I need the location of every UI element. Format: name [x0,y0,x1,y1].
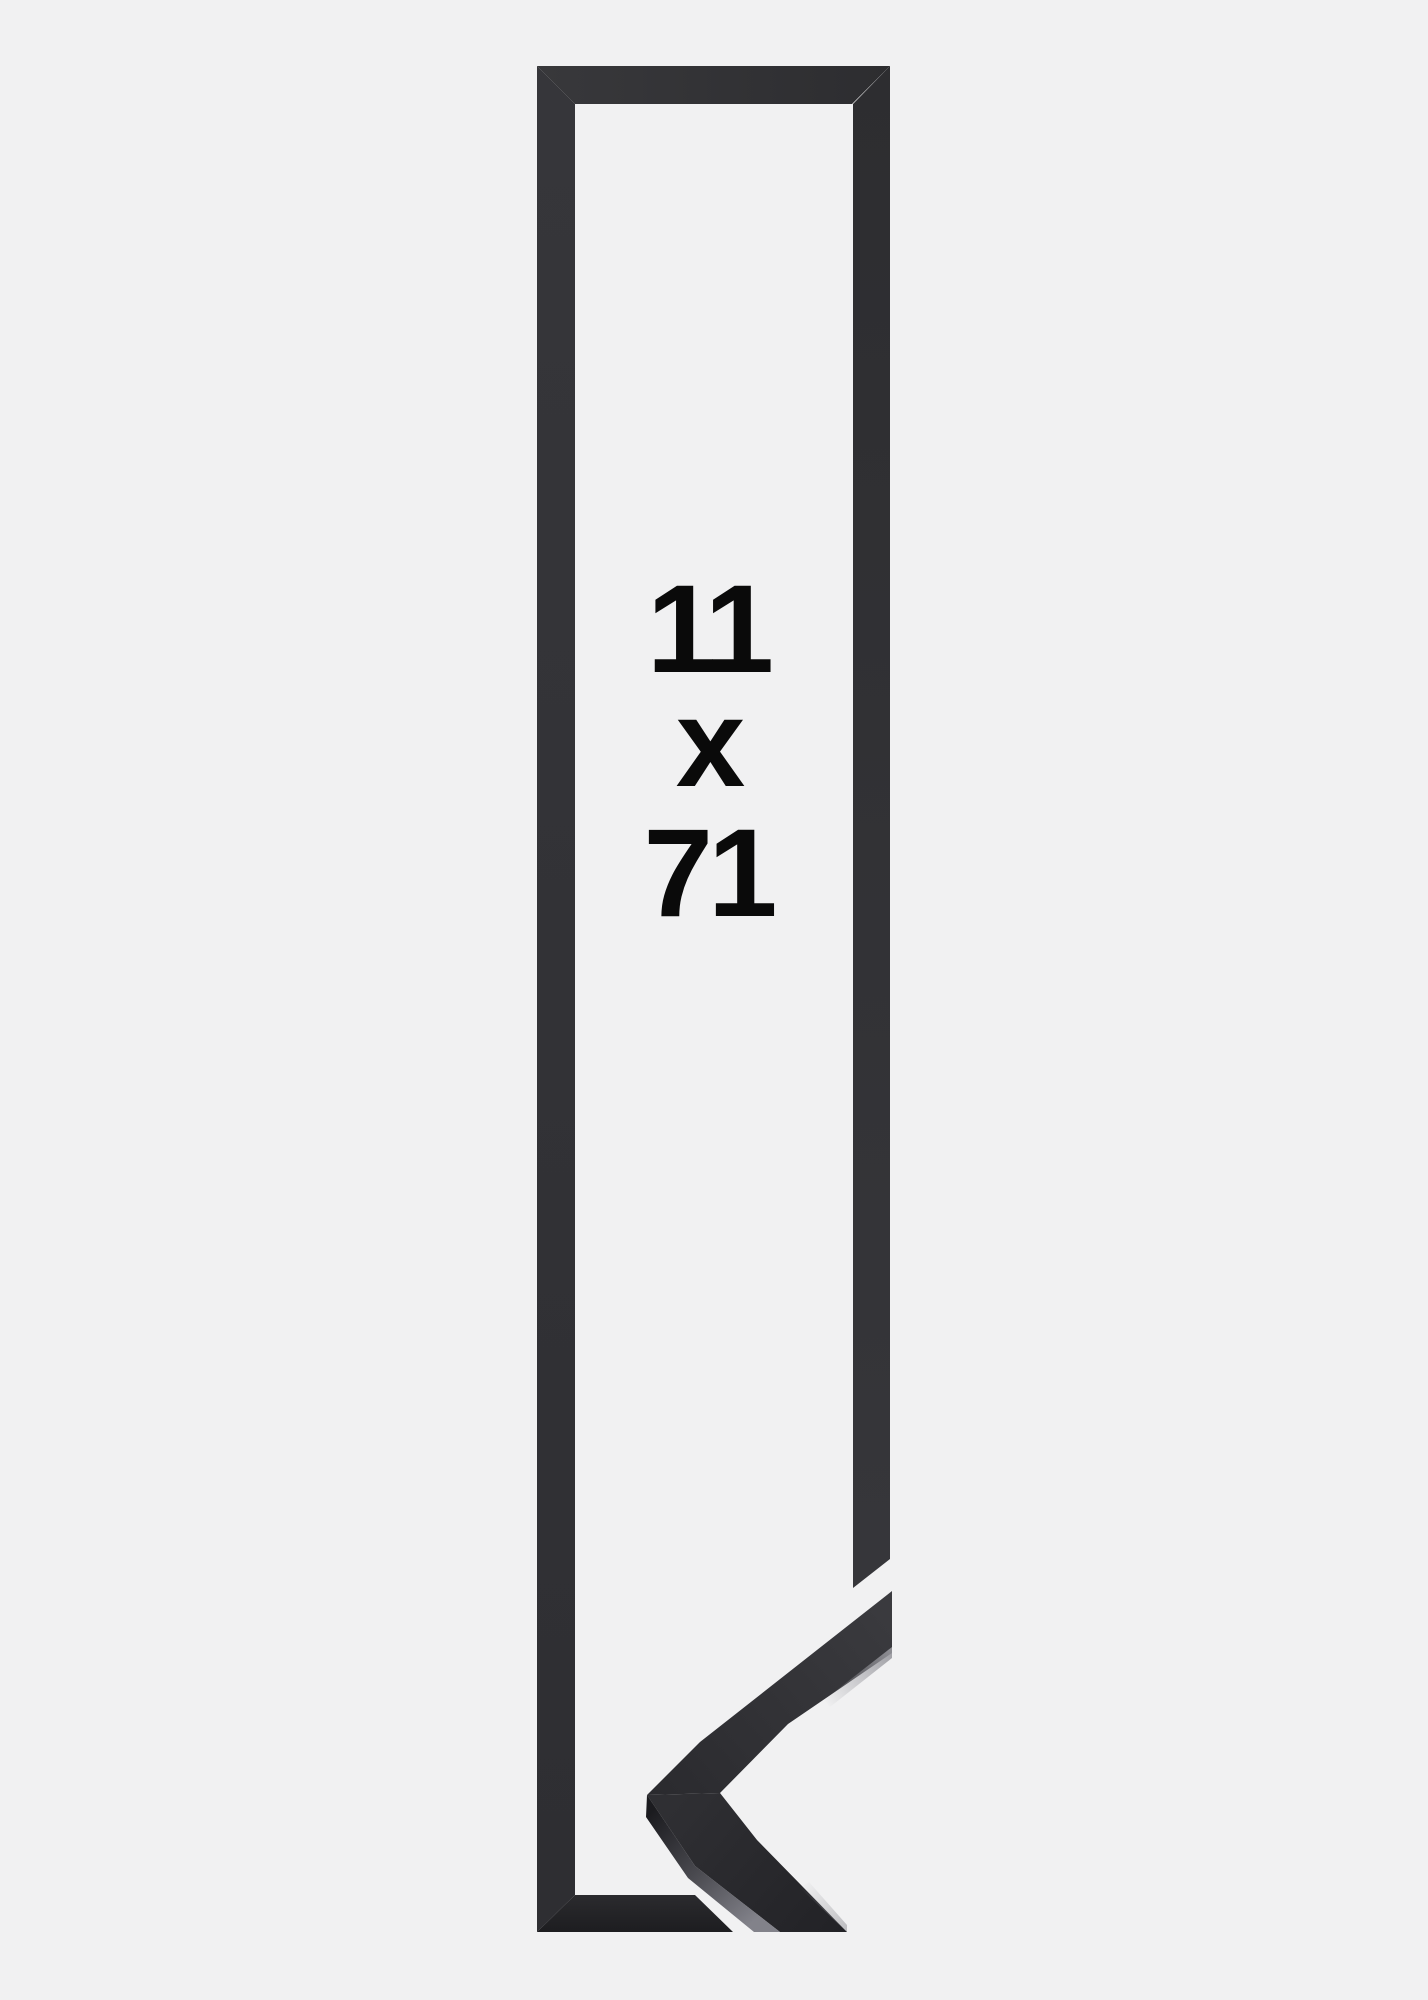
size-separator: x [676,681,741,806]
size-height-value: 71 [643,811,772,936]
corner-detail-upper-arm [647,1591,892,1795]
frame-left-bar [537,66,575,1932]
frame-right-bar [853,66,890,1588]
product-image-canvas: 11 x 71 [0,0,1428,2000]
frame-top-bar [537,66,890,104]
frame-illustration [0,0,1428,2000]
